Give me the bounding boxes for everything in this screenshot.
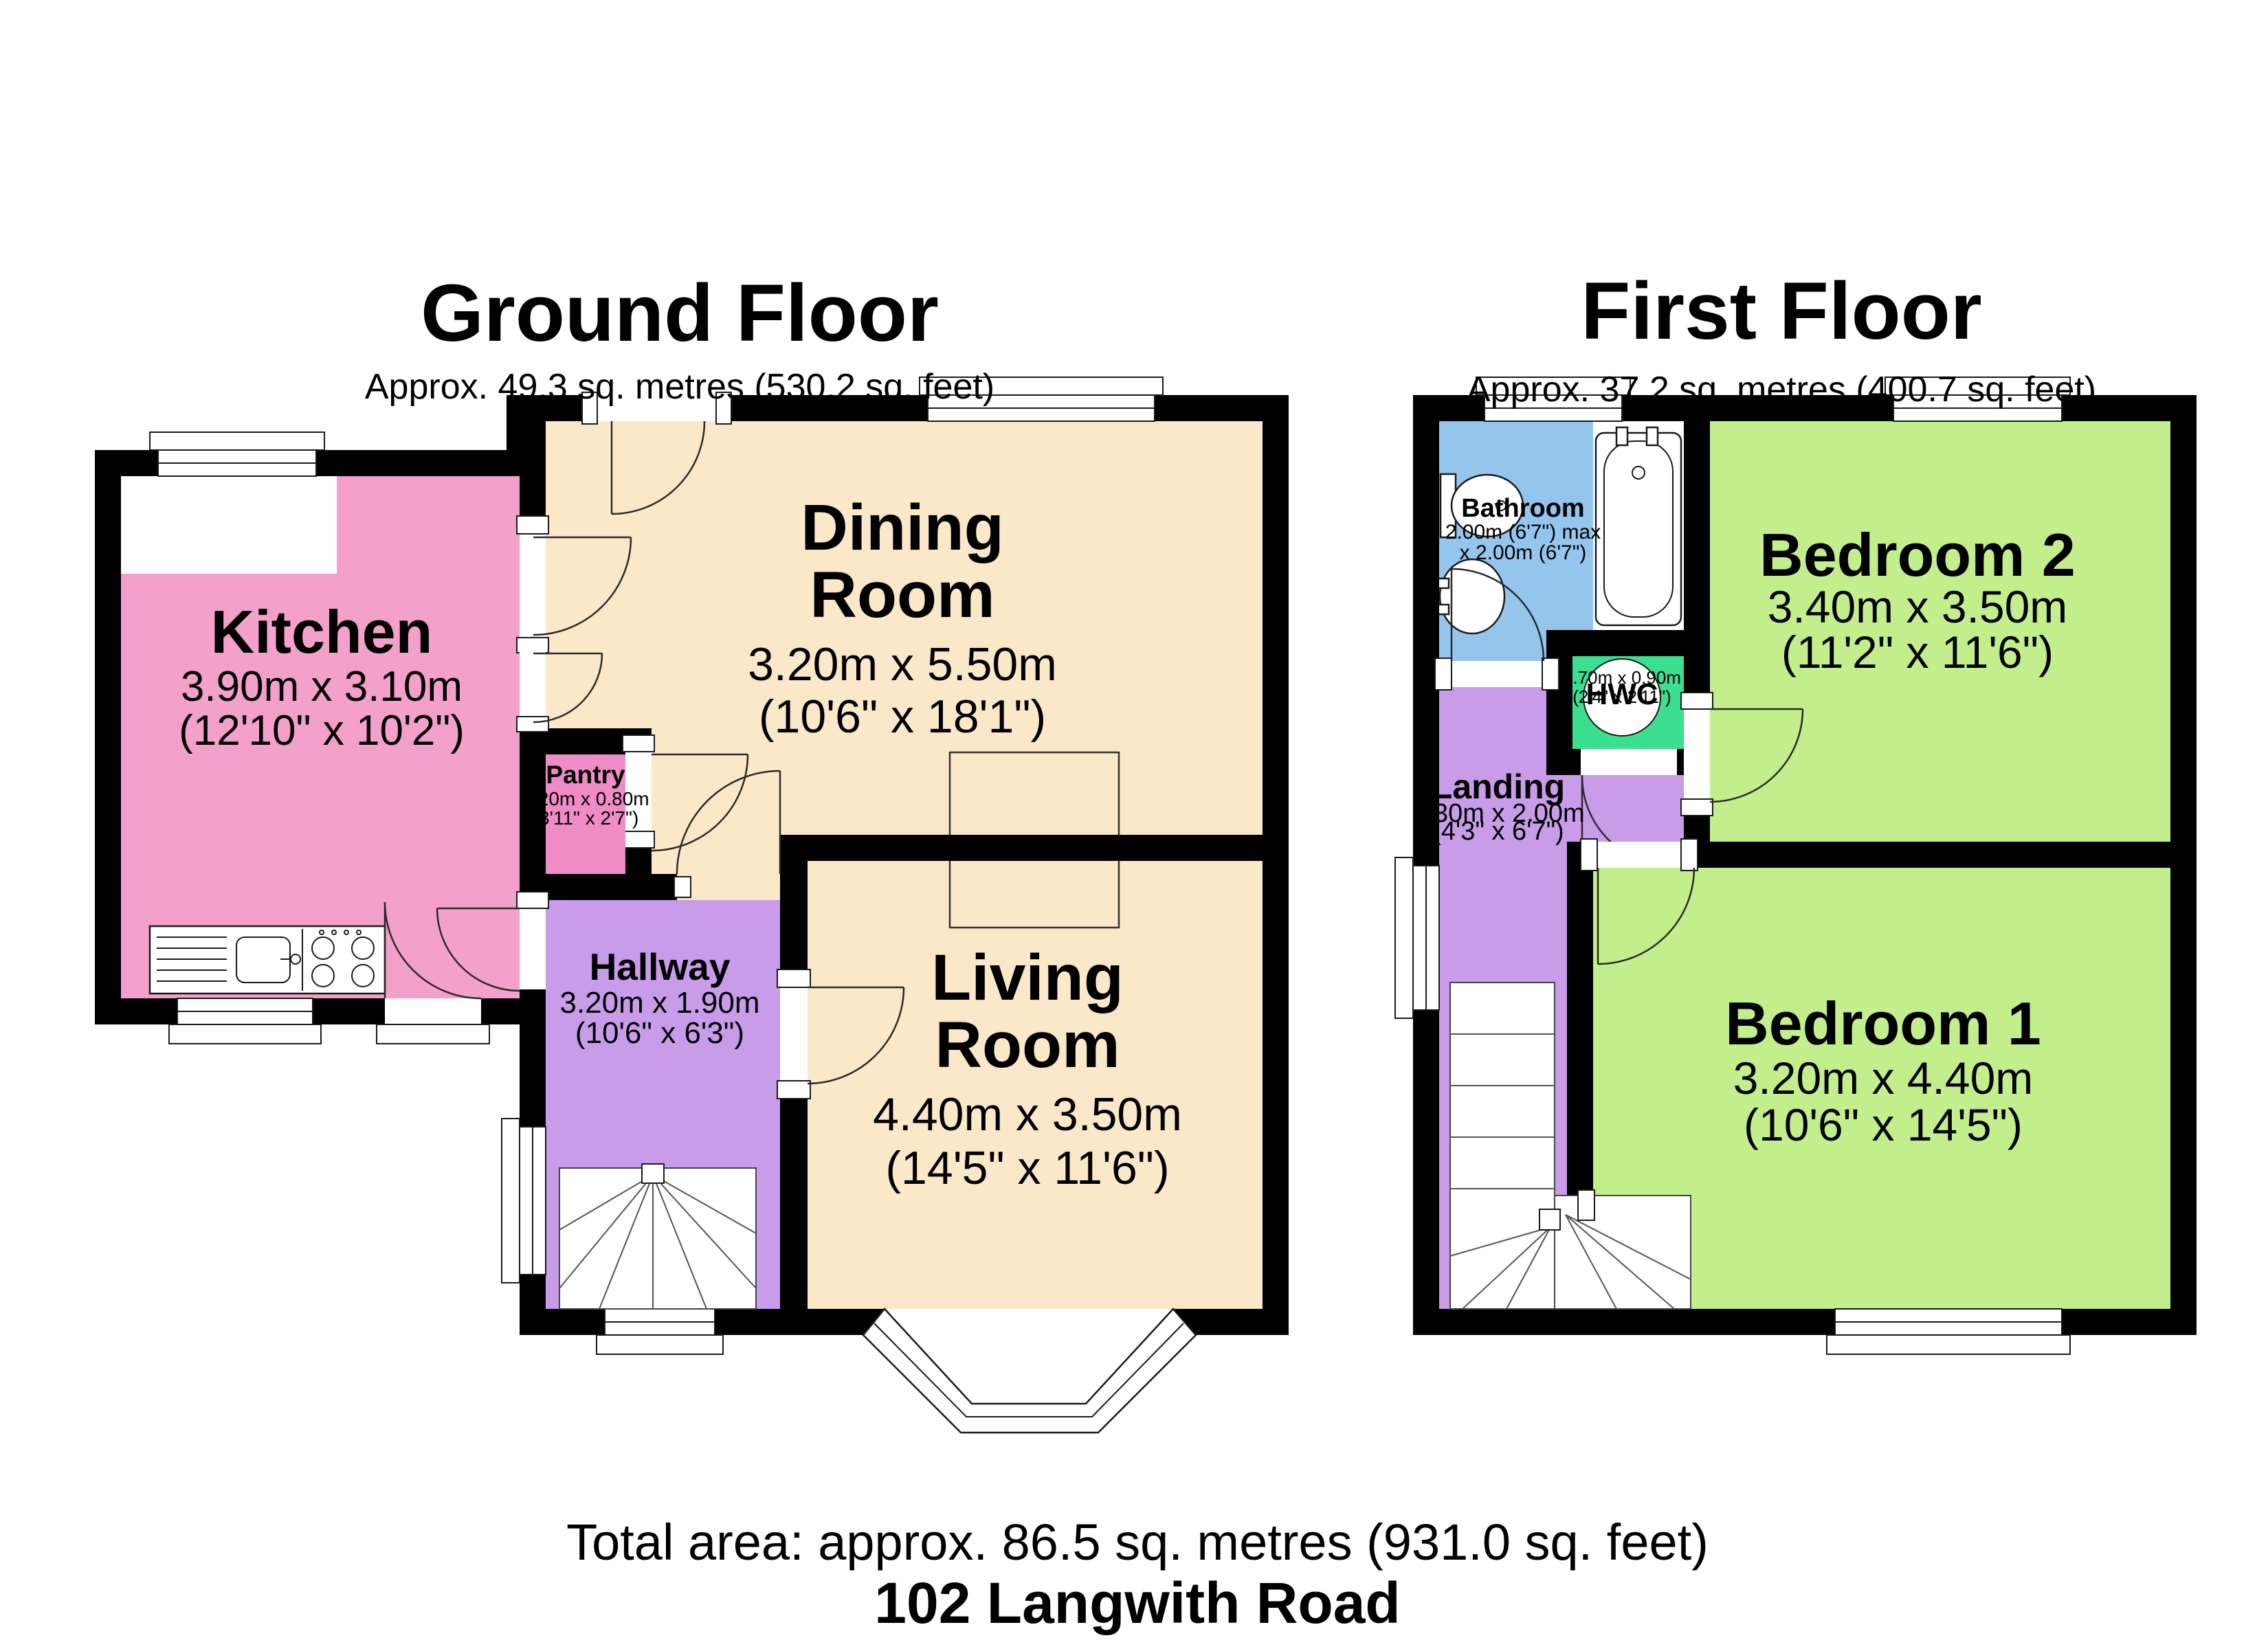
stair-newel-left (1539, 1209, 1560, 1230)
living-label-line1: Living (931, 941, 1124, 1014)
living-dims-m: 4.40m x 3.50m (873, 1088, 1182, 1141)
pantry-dims-m: 1.20m x 0.80m (522, 788, 649, 809)
stair-newel (642, 1164, 664, 1183)
floorplan-page: Ground Floor Approx. 49.3 sq. metres (53… (0, 0, 2268, 1649)
bay-window (863, 1309, 1196, 1433)
stair-newel-right (1578, 1190, 1594, 1220)
ground-floor-plan: Ground Floor Approx. 49.3 sq. metres (53… (95, 268, 1289, 1433)
kitchen-dims-ft: (12'10" x 10'2") (179, 707, 465, 754)
hallway-front-window (597, 1309, 723, 1354)
bathroom-dims-line2: x 2.00m (6'7") (1460, 541, 1587, 564)
side-window (502, 1119, 546, 1283)
first-floor-plan: First Floor Approx. 37.2 sq. metres (400… (1395, 266, 2197, 1354)
bedroom2-dims-m: 3.40m x 3.50m (1768, 581, 2068, 632)
living-label-line2: Room (935, 1009, 1120, 1081)
pantry-dims-ft: (3'11" x 2'7") (533, 807, 639, 829)
dining-label-line2: Room (810, 559, 994, 631)
hwc-label: HWC (1586, 677, 1658, 711)
landing-dims-ft: (4'3" x 6'7") (1432, 817, 1564, 846)
first-floor-title: First Floor (1581, 266, 1981, 357)
bedroom1-label: Bedroom 1 (1725, 989, 2041, 1057)
bedroom2-label: Bedroom 2 (1759, 521, 2076, 589)
landing-window (1395, 857, 1439, 1018)
dining-dims-ft: (10'6" x 18'1") (759, 691, 1046, 743)
kitchen-dims-m: 3.90m x 3.10m (181, 663, 463, 710)
hallway-dims-ft: (10'6" x 6'3") (575, 1016, 744, 1050)
living-dims-ft: (14'5" x 11'6") (885, 1142, 1169, 1194)
hallway-dims-m: 3.20m x 1.90m (559, 986, 759, 1020)
bedroom1-dims-ft: (10'6" x 14'5") (1744, 1099, 2023, 1150)
bedroom1-dims-m: 3.20m x 4.40m (1733, 1053, 2034, 1103)
kitchen-label: Kitchen (211, 598, 433, 666)
hallway-stairs (559, 1164, 756, 1309)
bathtub (1596, 427, 1681, 625)
ground-floor-title: Ground Floor (421, 268, 939, 359)
kitchen-window-bottom (169, 998, 321, 1044)
kitchen-sink-counter (150, 926, 385, 994)
dining-label-line1: Dining (801, 491, 1003, 564)
floorplan-drawing: Ground Floor Approx. 49.3 sq. metres (53… (0, 0, 2268, 1649)
footer: Total area: approx. 86.5 sq. metres (931… (566, 1514, 1709, 1635)
bathroom-dims-line1: 2.00m (6'7") max (1445, 521, 1601, 543)
bedroom2-dims-ft: (11'2" x 11'6") (1781, 627, 2054, 677)
bathroom-label: Bathroom (1461, 494, 1584, 523)
address-text: 102 Langwith Road (874, 1571, 1400, 1635)
ground-floor-subtitle: Approx. 49.3 sq. metres (530.2 sq. feet) (365, 367, 994, 407)
kitchen-window-top (150, 432, 324, 476)
pantry-label: Pantry (546, 761, 625, 789)
bedroom1-window (1827, 1309, 2070, 1354)
kitchen-corner-notch (121, 476, 337, 574)
dining-dims-m: 3.20m x 5.50m (748, 638, 1057, 691)
first-floor-subtitle: Approx. 37.2 sq. metres (400.7 sq. feet) (1467, 370, 2096, 410)
total-area-text: Total area: approx. 86.5 sq. metres (931… (566, 1514, 1709, 1571)
hallway-label: Hallway (590, 945, 731, 988)
